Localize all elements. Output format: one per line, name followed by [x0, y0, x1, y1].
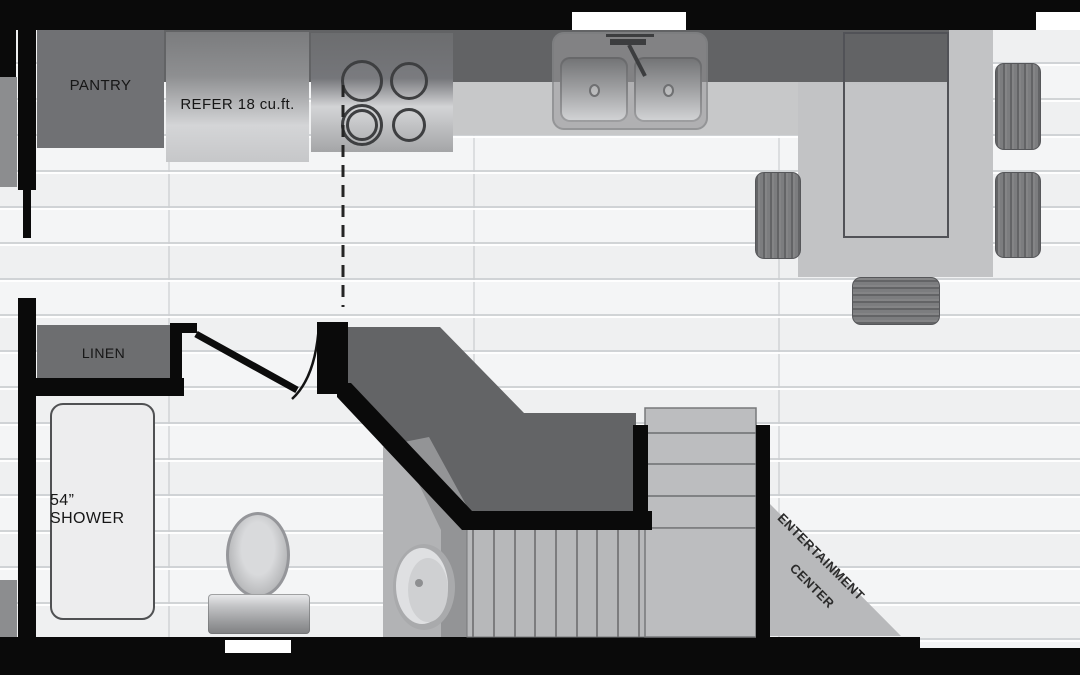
bathroom-door-leaf	[196, 334, 297, 390]
stairs-right-wall	[756, 425, 770, 638]
pantry-label: PANTRY	[37, 30, 164, 140]
staircase-upper-flight	[645, 408, 756, 528]
stairs-left-wall	[633, 425, 648, 530]
linen-label: LINEN	[37, 325, 170, 380]
lavatory-sink-shading	[408, 558, 448, 622]
staircase-landing	[645, 528, 756, 637]
refrigerator-label: REFER 18 cu.ft.	[166, 80, 309, 128]
faucet-spout-icon	[629, 45, 645, 76]
floorplan-canvas: ENTERTAINMENT CENTER PANTRY REFER 18 cu.…	[0, 0, 1080, 675]
shower-label: 54” SHOWER	[50, 403, 151, 616]
drain-icon	[415, 579, 423, 587]
